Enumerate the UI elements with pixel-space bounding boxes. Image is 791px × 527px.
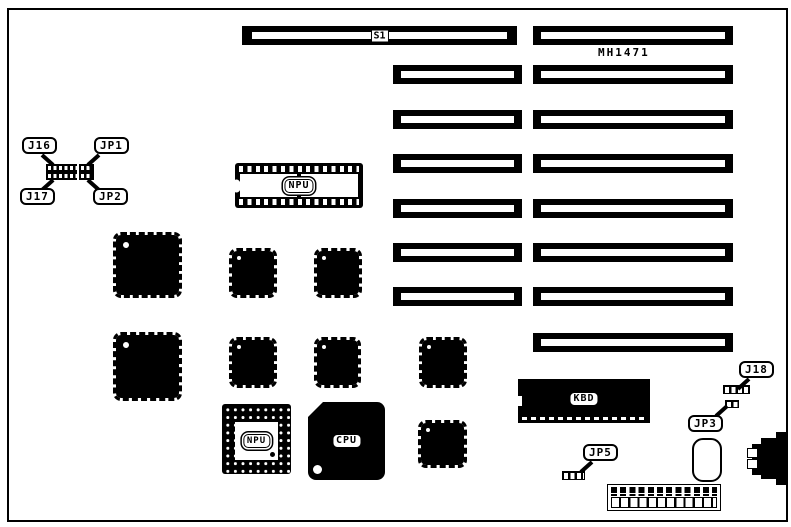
callout-jp2: JP2 [93,188,128,205]
cpu-pin1-dot [313,465,322,474]
slot-opening [401,293,514,300]
bottom-header-connector [607,484,721,511]
expansion-slot [393,154,522,173]
kbd-chip: KBD [518,379,650,423]
callout-j18: J18 [739,361,774,378]
pin1-dot [237,256,241,260]
pin1-dot [322,256,326,260]
dip-pins-bottom [239,199,359,205]
callout-jp1: JP1 [94,137,129,154]
jumper-pins [564,473,584,479]
cpu-chip: CPU [308,402,385,480]
expansion-slot [393,287,522,306]
pin1-dot [237,345,241,349]
motherboard-diagram: S1 MH1471 J16 JP1 J17 JP2 NPU [0,0,791,527]
slot-s1-label: S1 [370,29,388,42]
slot-opening [541,339,725,346]
jumper-block [46,164,94,180]
jumper-row [46,164,94,172]
expansion-slot [533,333,733,352]
ic-chip-large [113,332,182,401]
pin1-dot [426,428,430,432]
kbd-label: KBD [569,392,598,406]
slot-opening [541,293,725,300]
npu-pga-label: NPU [243,434,270,448]
connector-pin-row-top [611,487,717,493]
battery-outline [692,438,722,482]
slot-opening [541,249,725,256]
npu-pga-socket: NPU [222,404,291,474]
slot-opening [401,160,514,167]
expansion-slot [533,110,733,129]
cpu-label: CPU [332,434,361,448]
npu-dip-socket: NPU [235,163,363,208]
pin1-dot [123,342,129,348]
slot-opening [541,71,725,78]
expansion-slot [533,199,733,218]
slot-opening [401,71,514,78]
callout-jp3: JP3 [688,415,723,432]
dip-pin1-notch [232,179,241,192]
jumper-pins [727,402,738,407]
ic-chip [418,420,467,468]
jumper-pins [48,174,92,178]
callout-j16: J16 [22,137,57,154]
dip-pins-top [239,166,359,172]
pga-pin1-dot [270,452,275,457]
slot-opening [541,160,725,167]
pin1-dot [322,345,326,349]
ic-chip [419,337,467,388]
expansion-slot [393,199,522,218]
slot-opening [541,32,725,39]
expansion-slot [533,287,733,306]
slot-opening [401,116,514,123]
ic-chip [314,248,362,298]
pin1-dot [123,242,129,248]
callout-jp5: JP5 [583,444,618,461]
expansion-slot [533,243,733,262]
pin1-dot [427,345,431,349]
expansion-slot-s1: S1 [242,26,517,45]
ic-chip [229,248,277,298]
callout-j17: J17 [20,188,55,205]
expansion-slot [393,110,522,129]
expansion-slot [393,243,522,262]
din-connector-pin [747,448,758,458]
din-connector-pin [747,459,758,469]
slot-opening [401,205,514,212]
expansion-slot [393,65,522,84]
expansion-slot [533,154,733,173]
connector-pin-dashes [611,494,717,496]
ic-chip-large [113,232,182,298]
slot-opening [401,249,514,256]
npu-dip-label: NPU [284,179,313,193]
jumper-block-gap [77,164,79,180]
pga-cavity: NPU [235,422,278,460]
kbd-notch [518,396,522,406]
ic-chip [314,337,361,388]
jumper-pins [48,166,92,170]
connector-pin-row-bottom [611,497,717,508]
expansion-slot [533,26,733,45]
ic-chip [229,337,277,388]
expansion-slot [533,65,733,84]
slot-opening [541,116,725,123]
jumper-row [46,172,94,180]
part-number-text: MH1471 [598,46,650,59]
kbd-pin-row [522,417,646,420]
slot-opening [541,205,725,212]
